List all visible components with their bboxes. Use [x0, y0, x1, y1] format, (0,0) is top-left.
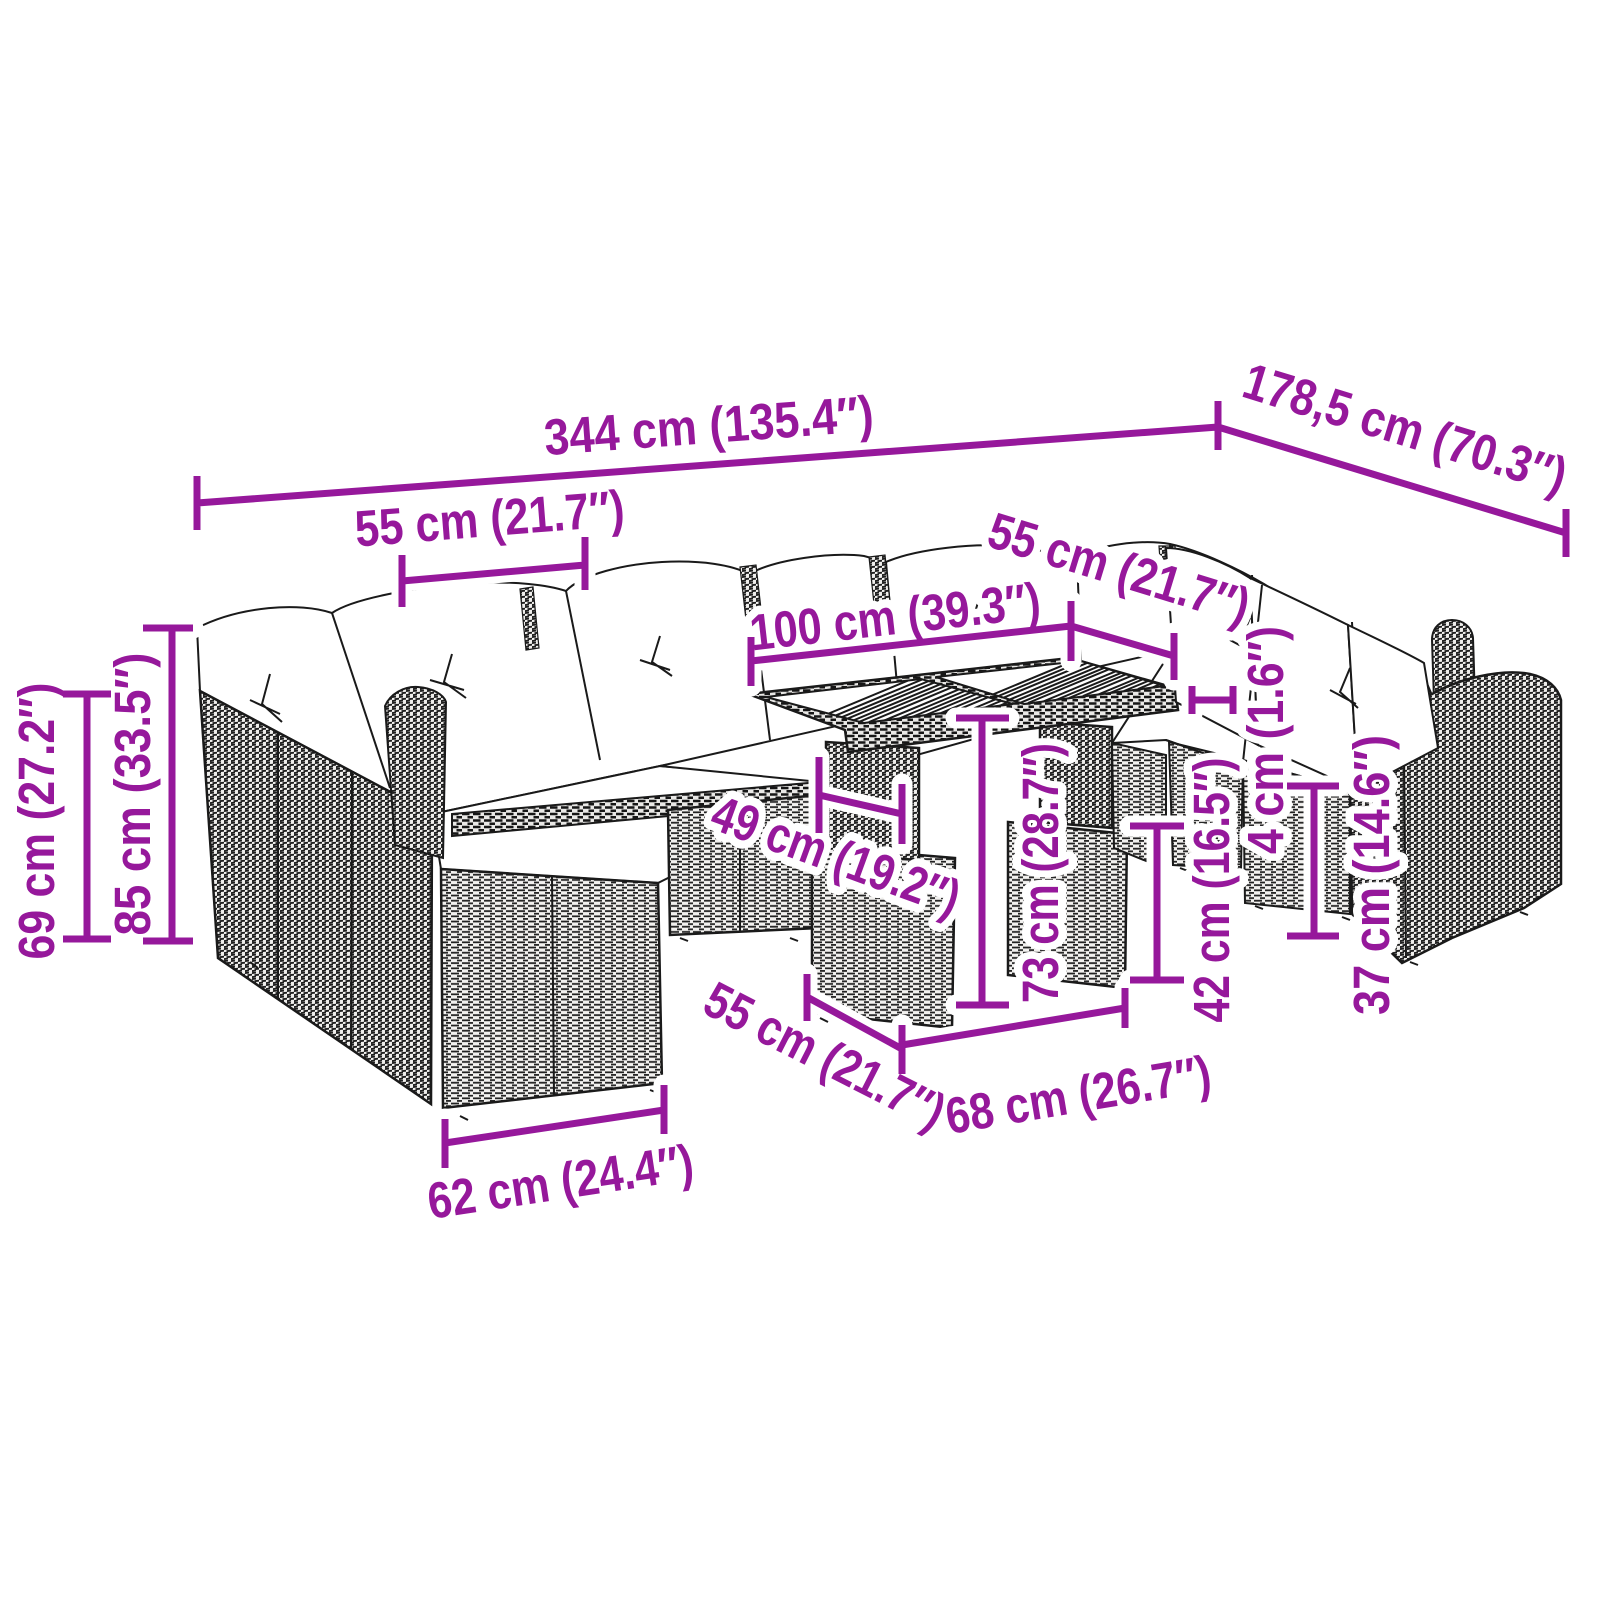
- svg-text:42 cm (16.5″): 42 cm (16.5″): [1183, 758, 1240, 1023]
- svg-text:37 cm (14.6″): 37 cm (14.6″): [1343, 735, 1400, 1015]
- svg-text:73 cm (28.7″): 73 cm (28.7″): [1012, 743, 1069, 1003]
- svg-text:4 cm (1.6″): 4 cm (1.6″): [1237, 626, 1294, 854]
- svg-text:69 cm (27.2″): 69 cm (27.2″): [8, 683, 65, 960]
- svg-text:85 cm (33.5″): 85 cm (33.5″): [104, 653, 161, 936]
